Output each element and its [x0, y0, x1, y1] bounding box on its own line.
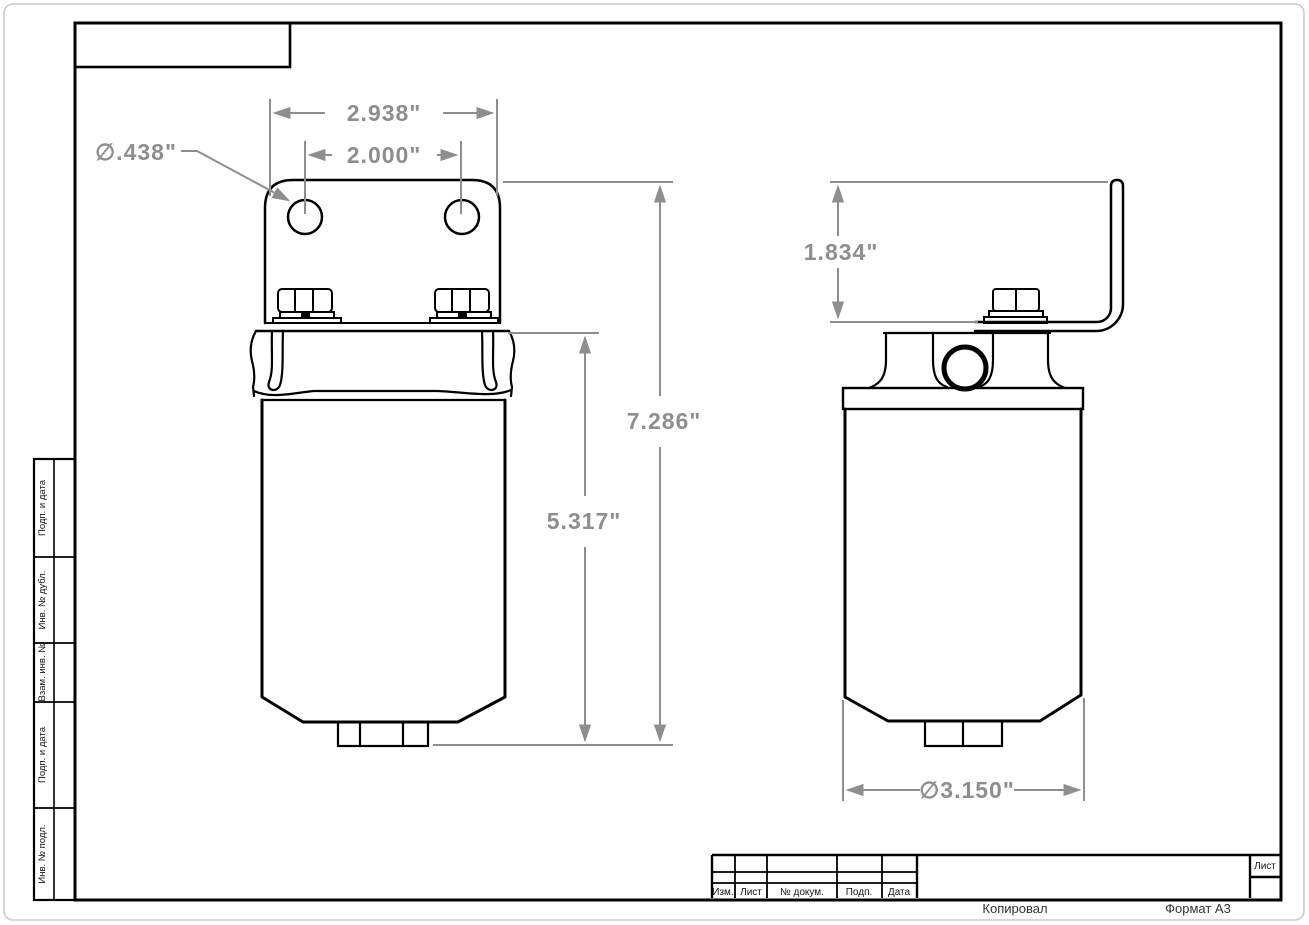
side-stamp-label: Взам. инв. № [37, 643, 48, 702]
title-block: Изм. Лист № докум. Подп. Дата Лист Копир… [712, 855, 1281, 916]
l-bracket [975, 180, 1123, 331]
dim-overall-height: 7.286" [627, 408, 701, 434]
hex-bolt-left [273, 289, 341, 323]
dim-hole-diameter: ∅.438" [95, 139, 177, 165]
inner-frame [75, 23, 1281, 900]
front-view [251, 180, 515, 746]
dim-bracket-width: 2.938" [347, 100, 421, 126]
hex-bolt-top [984, 289, 1047, 323]
page-border [4, 4, 1304, 920]
hex-bolt-right [430, 289, 498, 323]
sheet-label: Лист [1254, 861, 1276, 872]
dim-body-height: 5.317" [547, 508, 621, 534]
title-col-izm: Изм. [712, 887, 733, 898]
dim-bracket-height: 1.834" [804, 239, 878, 265]
hole-dia-leader [181, 151, 288, 200]
title-col-docnum: № докум. [780, 887, 824, 898]
canister-body-side [845, 409, 1081, 721]
bottom-plug-side [925, 721, 1002, 746]
drawing-canvas: Подп. и дата Инв. № дубл. Взам. инв. № П… [0, 0, 1309, 925]
top-left-stamp-box [75, 23, 290, 67]
side-stamp-label: Инв. № подл. [37, 824, 48, 883]
side-stamp-label: Подп. и дата [37, 479, 48, 536]
filter-head-side [843, 333, 1083, 409]
side-stamp-label: Инв. № дубл. [37, 571, 48, 630]
side-stamp-label: Подп. и дата [37, 726, 48, 783]
dimensions: 2.938" 2.000" ∅.438" 7.286" 5.317" 1.834… [95, 99, 1108, 803]
bottom-plug [338, 722, 428, 746]
dim-body-diameter: ∅3.150" [919, 777, 1015, 803]
filter-head [251, 331, 515, 400]
title-col-podp: Подп. [846, 887, 873, 898]
canister-body [262, 400, 505, 722]
format-label: Формат А3 [1165, 901, 1231, 916]
copied-label: Копировал [982, 901, 1047, 916]
title-col-data: Дата [888, 887, 911, 898]
port-opening [944, 347, 986, 389]
side-stamp: Подп. и дата Инв. № дубл. Взам. инв. № П… [34, 459, 75, 900]
page-frame [4, 4, 1304, 920]
title-col-list: Лист [740, 887, 762, 898]
side-view [843, 180, 1123, 746]
dim-hole-spacing: 2.000" [347, 142, 421, 168]
